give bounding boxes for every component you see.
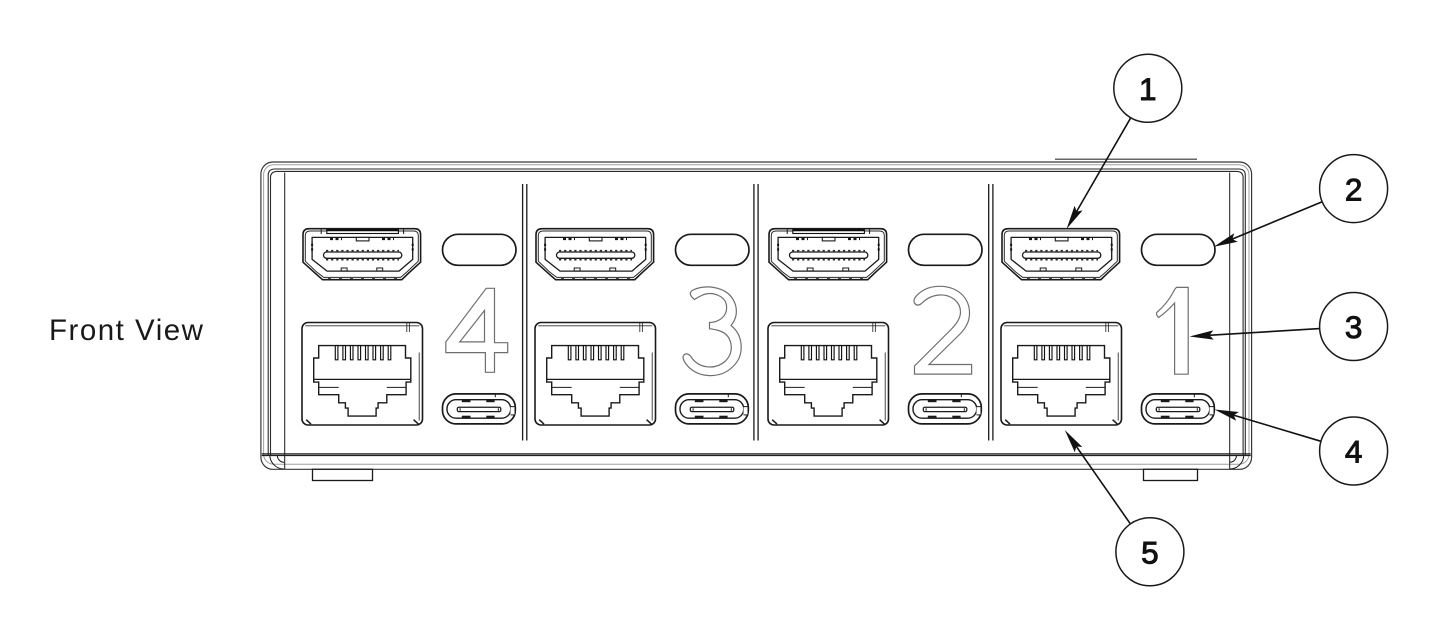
svg-text:1: 1 [1139, 71, 1157, 107]
svg-text:5: 5 [1141, 535, 1159, 571]
svg-text:3: 3 [1345, 309, 1363, 345]
svg-text:4: 4 [1345, 434, 1363, 470]
svg-text:2: 2 [1345, 171, 1363, 207]
svg-text:Front View: Front View [49, 314, 204, 347]
